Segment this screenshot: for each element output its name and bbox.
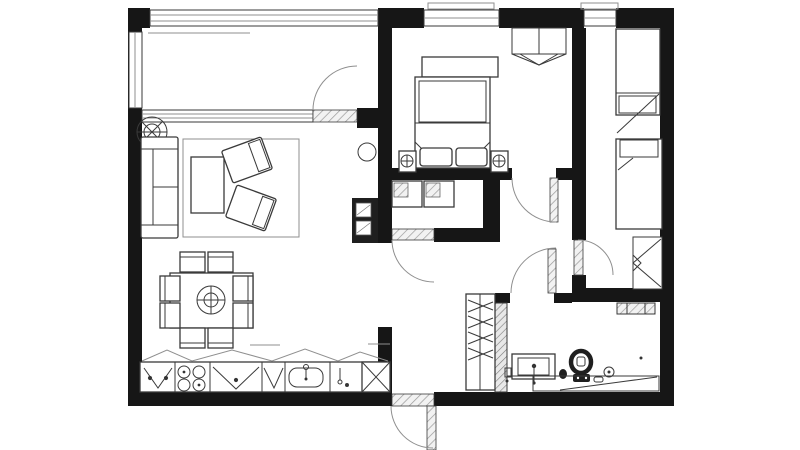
corner-wardrobe-unit [512, 28, 566, 65]
armchair-2 [225, 185, 276, 231]
closet-door [392, 229, 434, 282]
balcony-partition-glazing [142, 33, 313, 122]
vanity-sink [505, 354, 555, 385]
kitchen-counter [140, 362, 390, 392]
living-room-furniture [137, 117, 376, 238]
second-bedroom-furniture [616, 29, 662, 289]
table-centerpiece [197, 286, 225, 314]
floor-speck [640, 357, 643, 360]
hallway-wardrobe [466, 294, 495, 390]
single-bed-bottom [616, 139, 662, 229]
armchair-1 [221, 137, 272, 183]
second-bedroom-window [581, 3, 618, 26]
interior-walls [357, 28, 660, 392]
bathroom-plumbing-wall [495, 303, 507, 392]
floor-plan-drawing: Apartment floor plan [0, 0, 800, 450]
second-bedroom-door [574, 240, 613, 275]
dining-set [160, 252, 253, 348]
utility-shaft [352, 198, 378, 243]
closet-appliances [392, 181, 454, 207]
floor-drain [594, 367, 614, 382]
nightstand-left [399, 151, 416, 172]
balcony-side-window [129, 32, 142, 108]
master-bedroom-furniture [399, 28, 566, 172]
coffee-table [191, 157, 224, 213]
balcony-glazing-window [150, 10, 378, 26]
pillow-right [456, 148, 487, 166]
toilet [559, 351, 591, 382]
waste-bin [559, 369, 567, 379]
master-bedroom-window [424, 3, 499, 26]
double-bed [415, 77, 490, 168]
bathroom-door [511, 248, 556, 293]
master-bedroom-door [512, 178, 558, 222]
towel-radiator [617, 303, 655, 314]
entrance-door [391, 394, 436, 450]
nightstand-right [491, 151, 508, 172]
tall-unit [362, 362, 390, 392]
sofa [141, 137, 178, 238]
balcony-door [313, 66, 357, 122]
single-bed-top [616, 29, 660, 115]
upper-cabinet-zigzag [142, 349, 388, 361]
kitchen [140, 344, 390, 392]
bench-dresser [422, 57, 498, 77]
pendant-lamp [358, 143, 376, 161]
wardrobe-arrow-unit [633, 237, 662, 289]
bathroom-fixtures [505, 303, 659, 391]
pillow-left [420, 148, 452, 166]
floor-plan-canvas: Apartment floor plan [0, 0, 800, 450]
